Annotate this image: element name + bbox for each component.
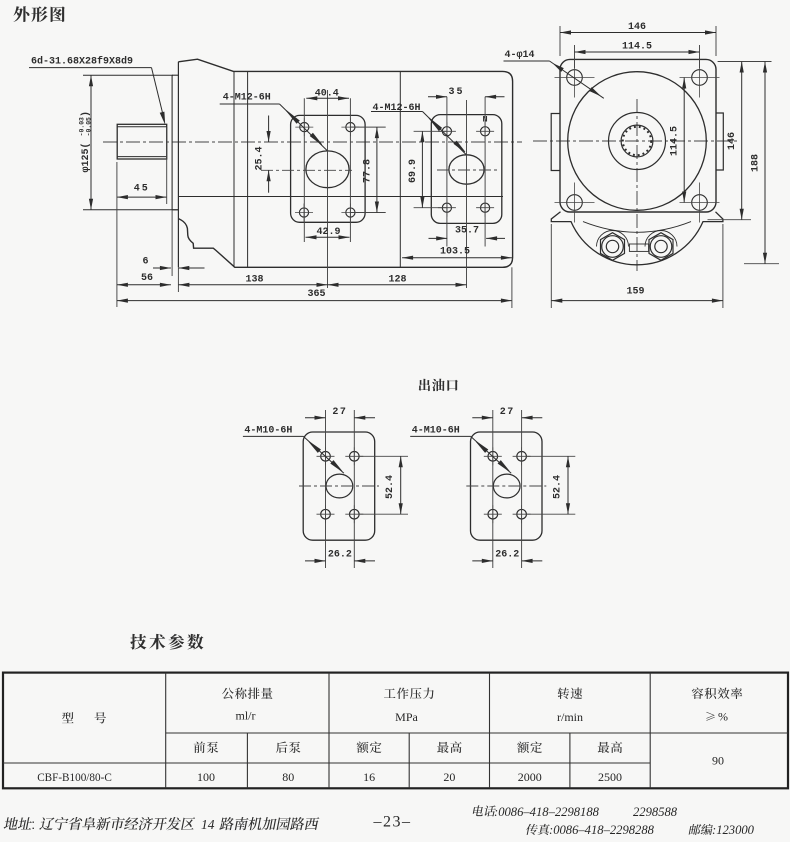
svg-text:27: 27 [332,407,347,418]
svg-text:16: 16 [363,770,375,784]
svg-text:φ125(: φ125( [80,142,92,172]
svg-text:100: 100 [197,770,215,784]
svg-text:45: 45 [134,184,150,195]
svg-text:2298588: 2298588 [633,805,678,819]
svg-text:138: 138 [245,275,263,286]
svg-text:%: % [718,710,728,724]
svg-text:2000: 2000 [518,770,542,784]
svg-text:35.7: 35.7 [455,225,479,236]
svg-text:20: 20 [443,770,455,784]
svg-text:56: 56 [141,273,153,284]
svg-text:146: 146 [628,22,646,33]
svg-text:146: 146 [727,132,738,150]
svg-text::: : [31,817,35,833]
svg-text:-0.03: -0.03 [78,117,85,136]
svg-text:365: 365 [307,289,325,300]
svg-text::0086–418–2298188: :0086–418–2298188 [494,805,600,819]
svg-text:MPa: MPa [395,710,418,724]
svg-text:): ) [80,111,92,117]
svg-text::0086–418–2298288: :0086–418–2298288 [549,823,655,837]
svg-text:77.8: 77.8 [362,159,373,183]
svg-text:CBF-B100/80-C: CBF-B100/80-C [37,772,112,784]
svg-text:26.2: 26.2 [328,550,352,561]
svg-text:-0.05: -0.05 [85,117,92,136]
svg-text:26.2: 26.2 [495,550,519,561]
svg-text:6d-31.68X28f9X8d9: 6d-31.68X28f9X8d9 [31,56,133,68]
svg-text:4-M12-6H: 4-M12-6H [223,93,271,104]
svg-text:4-M10-6H: 4-M10-6H [244,426,292,437]
svg-text:159: 159 [626,287,644,298]
svg-text:80: 80 [282,770,294,784]
svg-text:40.4: 40.4 [315,88,339,99]
svg-text:35: 35 [448,87,464,98]
svg-text:25.4: 25.4 [255,146,266,170]
svg-text:52.4: 52.4 [385,475,396,499]
svg-text:ml/r: ml/r [236,709,256,723]
svg-text:103.5: 103.5 [440,247,470,258]
svg-text:–23–: –23– [373,814,412,831]
svg-text:6: 6 [142,257,148,268]
svg-text:2500: 2500 [598,770,622,784]
svg-text:r/min: r/min [557,710,583,724]
svg-text:128: 128 [388,275,406,286]
svg-text:42.9: 42.9 [316,227,340,238]
svg-text:114.5: 114.5 [670,126,681,156]
svg-text:69.9: 69.9 [408,159,419,183]
svg-text:4-M10-6H: 4-M10-6H [412,426,460,437]
svg-text::123000: :123000 [712,823,755,837]
svg-text:4-M12-6H: 4-M12-6H [373,103,421,114]
svg-text:90: 90 [712,754,724,768]
svg-text:14: 14 [201,817,215,832]
svg-text:188: 188 [751,154,762,172]
svg-text:114.5: 114.5 [622,42,652,53]
svg-text:4-φ14: 4-φ14 [505,50,535,61]
svg-text:52.4: 52.4 [553,475,564,499]
svg-text:27: 27 [500,407,515,418]
